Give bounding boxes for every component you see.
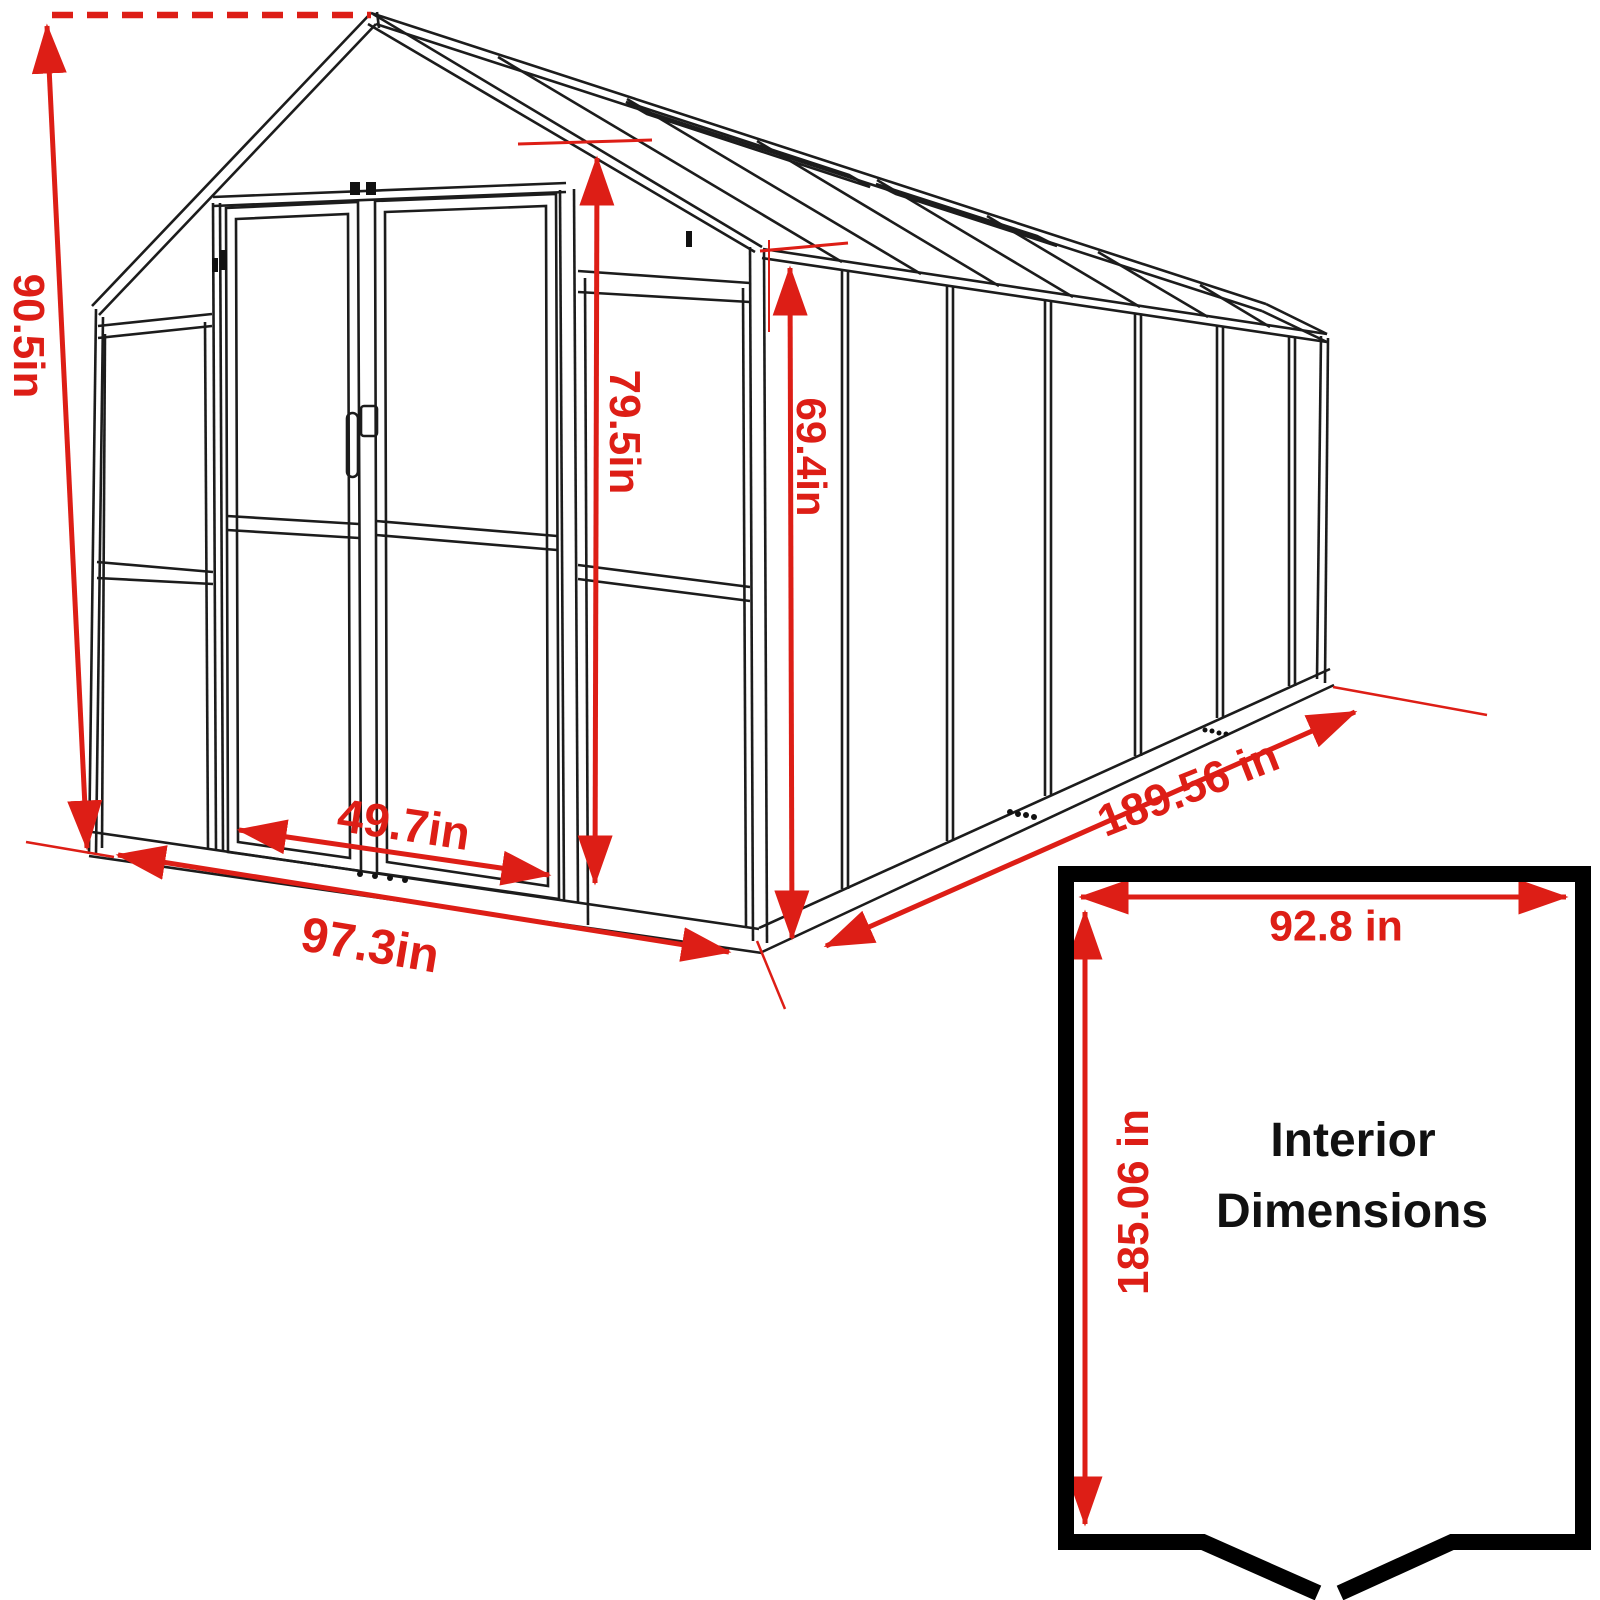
dimension-overall-height bbox=[26, 15, 371, 857]
eave-height-label: 69.4in bbox=[790, 397, 832, 516]
greenhouse-dimension-diagram: 90.5in 79.5in 69.4in 49.7in 97.3in 189.5… bbox=[0, 0, 1600, 1600]
interior-depth-label: 185.06 in bbox=[1112, 1109, 1156, 1295]
diagram-line-art bbox=[0, 0, 1600, 1600]
dimension-annotations bbox=[26, 15, 1566, 1524]
hardware-marks bbox=[212, 182, 1229, 883]
interior-title-line1: Interior bbox=[1270, 1117, 1435, 1165]
dimension-front-width bbox=[118, 855, 785, 1009]
double-doors bbox=[226, 194, 559, 899]
door-height-label: 79.5in bbox=[602, 370, 646, 495]
overall-height-label: 90.5in bbox=[6, 274, 50, 399]
interior-title-line2: Dimensions bbox=[1216, 1188, 1488, 1236]
right-door bbox=[375, 194, 559, 899]
dimension-eave-height bbox=[760, 240, 848, 938]
interior-width-label: 92.8 in bbox=[1269, 906, 1403, 949]
